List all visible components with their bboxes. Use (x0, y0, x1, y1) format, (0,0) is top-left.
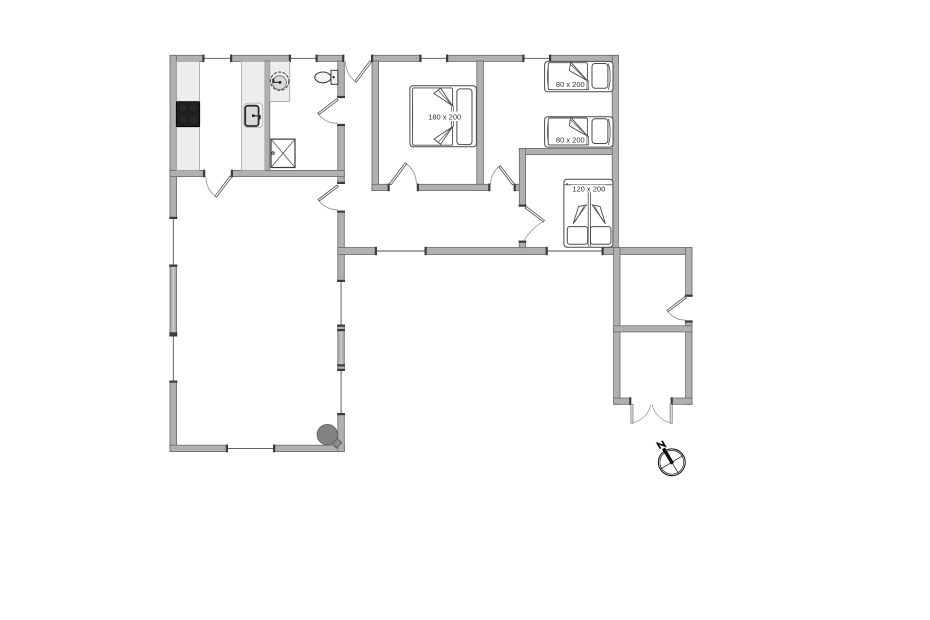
svg-text:120 x 200: 120 x 200 (572, 184, 605, 193)
svg-text:80 x 200: 80 x 200 (556, 135, 585, 144)
svg-text:80 x 200: 80 x 200 (556, 80, 585, 89)
svg-text:180 x 200: 180 x 200 (428, 112, 461, 121)
